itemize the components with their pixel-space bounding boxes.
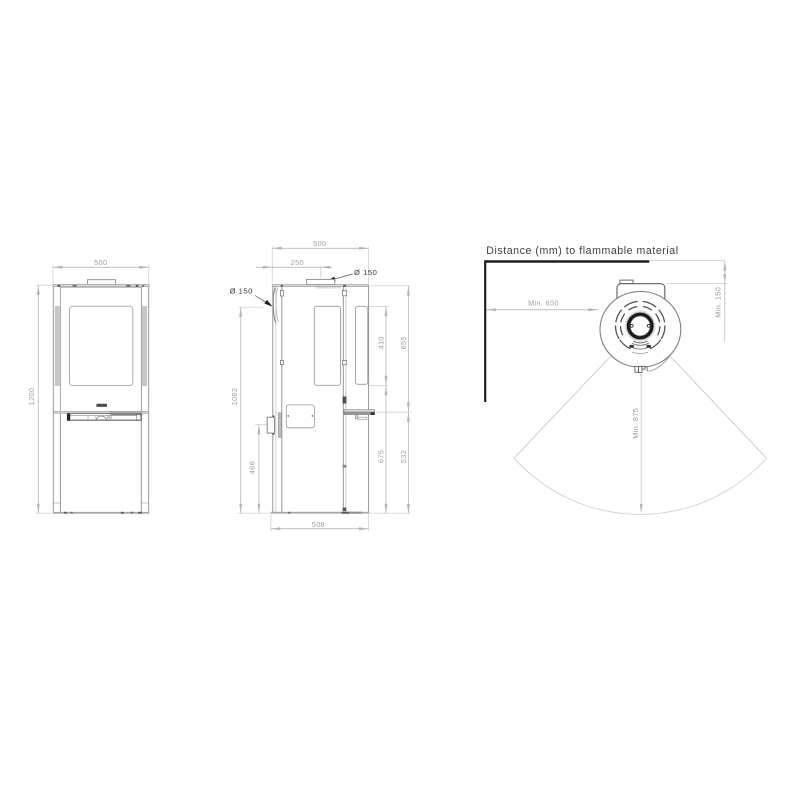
svg-text:410: 410 xyxy=(377,336,386,349)
svg-text:655: 655 xyxy=(399,336,408,349)
svg-text:675: 675 xyxy=(377,450,386,463)
svg-text:500: 500 xyxy=(313,239,326,248)
svg-text:1082: 1082 xyxy=(230,388,239,406)
svg-text:Min. 650: Min. 650 xyxy=(528,298,559,307)
svg-text:1200: 1200 xyxy=(27,388,36,406)
svg-text:532: 532 xyxy=(399,450,408,463)
svg-text:Ø 150: Ø 150 xyxy=(230,286,253,295)
svg-text:250: 250 xyxy=(291,258,304,267)
svg-text:Min. 150: Min. 150 xyxy=(713,287,722,318)
svg-text:Min. 875: Min. 875 xyxy=(631,408,640,439)
svg-text:508: 508 xyxy=(312,520,325,529)
svg-text:Ø 150: Ø 150 xyxy=(354,268,377,277)
svg-text:466: 466 xyxy=(248,461,257,474)
svg-text:Distance (mm) to flammable mat: Distance (mm) to flammable material xyxy=(486,245,678,257)
svg-text:500: 500 xyxy=(94,258,107,267)
